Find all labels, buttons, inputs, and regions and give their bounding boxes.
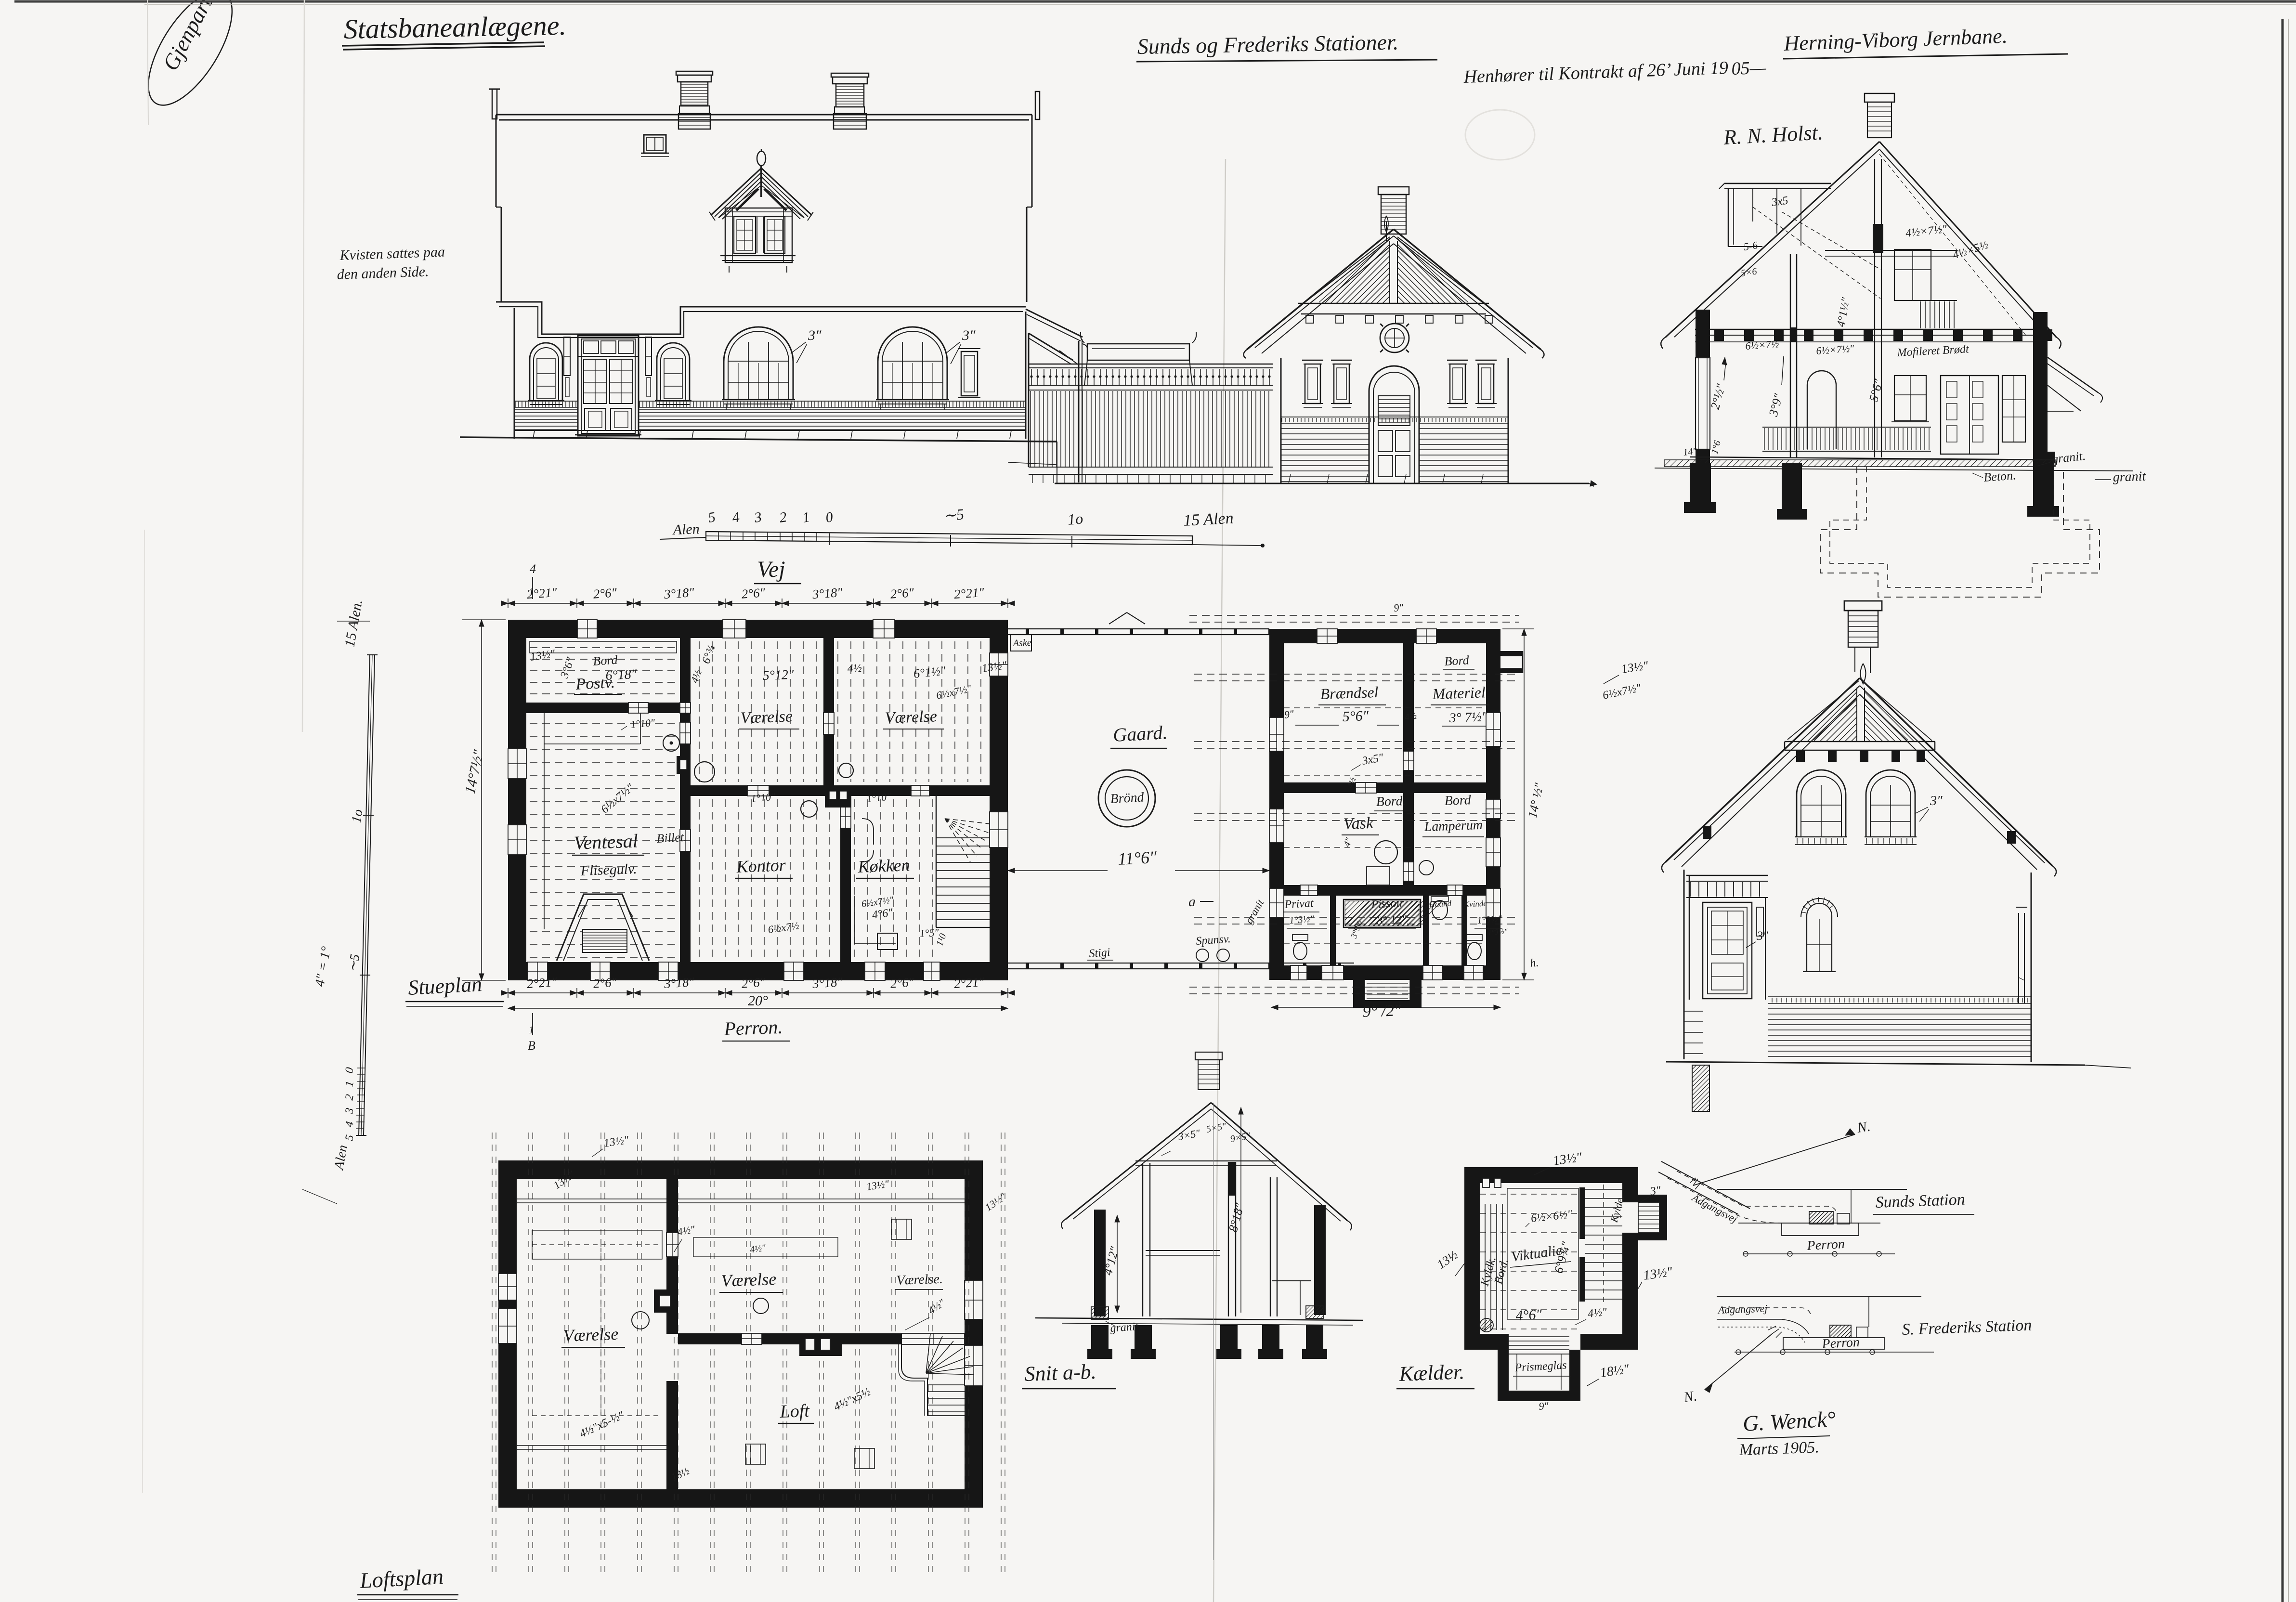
svg-text:3″: 3″ <box>962 327 976 343</box>
svg-text:5°6″: 5°6″ <box>1342 708 1369 725</box>
svg-text:Bord: Bord <box>1444 653 1470 668</box>
svg-text:Pissoir: Pissoir <box>1370 897 1405 911</box>
svg-text:4½″: 4½″ <box>749 1242 767 1255</box>
svg-text:3°18″: 3°18″ <box>811 975 843 991</box>
svg-text:Værelse: Værelse <box>721 1269 777 1290</box>
svg-text:3° 7½″: 3° 7½″ <box>1448 709 1487 726</box>
svg-text:Sunds og Frederiks Stationer.: Sunds og Frederiks Stationer. <box>1137 30 1398 59</box>
svg-text:Postv.: Postv. <box>574 674 615 693</box>
svg-text:15 Alen: 15 Alen <box>1183 509 1234 530</box>
svg-text:Kælder.: Kælder. <box>1398 1360 1465 1386</box>
svg-text:9° /2″: 9° /2″ <box>1362 1002 1402 1021</box>
svg-text:3° 12″: 3° 12″ <box>1376 913 1408 927</box>
svg-text:05—: 05— <box>1731 58 1766 79</box>
svg-text:Adgangsvej: Adgangsvej <box>1717 1302 1767 1316</box>
svg-text:Lamperum: Lamperum <box>1423 818 1483 834</box>
svg-text:4½: 4½ <box>1404 711 1418 723</box>
svg-text:2°21″: 2°21″ <box>526 975 558 991</box>
svg-text:Bord.: Bord. <box>1376 794 1406 809</box>
svg-text:N.: N. <box>1682 1388 1698 1406</box>
svg-text:1o: 1o <box>349 808 365 824</box>
svg-text:Brönd: Brönd <box>1110 790 1145 807</box>
svg-text:Flisegulv.: Flisegulv. <box>580 861 637 879</box>
svg-text:3″: 3″ <box>1930 794 1943 808</box>
svg-text:Kvinde: Kvinde <box>1463 899 1487 909</box>
svg-text:Snit a-b.: Snit a-b. <box>1024 1360 1097 1386</box>
svg-text:5°12″: 5°12″ <box>762 667 794 683</box>
svg-text:20°: 20° <box>748 993 768 1009</box>
svg-text:1°3½″: 1°3½″ <box>1477 913 1502 926</box>
svg-text:B: B <box>528 1039 535 1053</box>
svg-text:2°6″: 2°6″ <box>890 585 915 601</box>
svg-text:1°3½″: 1°3½″ <box>1487 927 1508 937</box>
svg-text:3°18″: 3°18″ <box>663 975 695 991</box>
svg-text:9″: 9″ <box>1393 601 1404 614</box>
svg-text:3°18″: 3°18″ <box>811 585 843 601</box>
svg-text:1°3½″: 1°3½″ <box>1289 913 1315 926</box>
svg-text:Alen: Alen <box>672 521 700 538</box>
svg-text:Perron.: Perron. <box>723 1016 783 1040</box>
svg-text:2°21″: 2°21″ <box>953 585 985 601</box>
svg-text:1: 1 <box>529 586 534 598</box>
svg-text:2°6″: 2°6″ <box>741 975 766 990</box>
svg-text:Materiel: Materiel <box>1432 683 1486 703</box>
svg-text:Perron: Perron <box>1821 1335 1860 1352</box>
svg-text:1°10″: 1°10″ <box>750 791 776 805</box>
svg-text:2°6″: 2°6″ <box>593 585 618 601</box>
svg-text:14″: 14″ <box>1683 446 1697 458</box>
svg-text:h.: h. <box>1529 957 1539 970</box>
svg-text:5×6: 5×6 <box>1740 266 1758 279</box>
svg-text:Stueplan: Stueplan <box>407 972 483 1000</box>
svg-text:Statsbaneanlægene.: Statsbaneanlægene. <box>343 10 566 45</box>
svg-text:1°10″: 1°10″ <box>630 716 656 730</box>
svg-text:Loft: Loft <box>779 1401 810 1422</box>
svg-text:Billet.: Billet. <box>656 830 687 846</box>
svg-text:11°6″: 11°6″ <box>1117 847 1158 869</box>
svg-text:Værelse: Værelse <box>563 1324 619 1345</box>
svg-text:Bord: Bord <box>592 652 618 668</box>
svg-text:Værelse.: Værelse. <box>896 1272 943 1288</box>
svg-text:Privat: Privat <box>1284 897 1315 911</box>
svg-text:a: a <box>1188 894 1196 910</box>
svg-text:4½: 4½ <box>847 662 862 675</box>
svg-text:Aske: Aske <box>1012 638 1031 649</box>
svg-text:Perron: Perron <box>1806 1237 1845 1253</box>
svg-text:Gaard.: Gaard. <box>1112 721 1168 746</box>
svg-text:∼5: ∼5 <box>345 953 363 973</box>
svg-text:Marts 1905.: Marts 1905. <box>1738 1438 1819 1459</box>
svg-text:Kontor: Kontor <box>736 855 786 876</box>
svg-text:Spunsv.: Spunsv. <box>1196 933 1231 948</box>
svg-text:2°6″: 2°6″ <box>741 585 766 601</box>
svg-text:Sunds Station: Sunds Station <box>1875 1191 1965 1211</box>
svg-text:Stigi: Stigi <box>1089 946 1111 960</box>
svg-text:Bord: Bord <box>1444 793 1472 808</box>
svg-text:6½×7½: 6½×7½ <box>1745 338 1779 352</box>
svg-text:Haand: Haand <box>1428 899 1452 909</box>
svg-text:2°21″: 2°21″ <box>953 975 985 991</box>
svg-text:Vask: Vask <box>1343 814 1374 833</box>
svg-text:1: 1 <box>529 1024 534 1036</box>
svg-text:Beton.: Beton. <box>1983 468 2016 484</box>
svg-text:4½″: 4½″ <box>1587 1306 1608 1320</box>
svg-text:4: 4 <box>530 562 536 576</box>
svg-text:9″: 9″ <box>1539 1400 1550 1412</box>
svg-text:Loftsplan: Loftsplan <box>359 1564 444 1593</box>
svg-text:4°6″: 4°6″ <box>1515 1306 1543 1324</box>
svg-text:Ventesal: Ventesal <box>574 830 639 854</box>
svg-text:3°18″: 3°18″ <box>663 585 695 601</box>
svg-text:3″: 3″ <box>1649 1184 1662 1198</box>
svg-text:Vej: Vej <box>757 557 785 582</box>
svg-text:1°10″: 1°10″ <box>866 791 892 805</box>
svg-text:5-6: 5-6 <box>1743 239 1759 253</box>
svg-text:Værelse: Værelse <box>885 707 938 727</box>
svg-text:granit: granit <box>2113 469 2147 485</box>
svg-text:Køkken: Køkken <box>857 855 910 876</box>
svg-text:3″: 3″ <box>1756 929 1769 943</box>
svg-text:den anden Side.: den anden Side. <box>337 263 429 283</box>
svg-text:2°6″: 2°6″ <box>890 975 915 990</box>
svg-text:3x5: 3x5 <box>1770 194 1789 209</box>
svg-text:3″: 3″ <box>808 327 822 343</box>
svg-text:∼5: ∼5 <box>942 505 965 524</box>
svg-text:G. Wenck°: G. Wenck° <box>1742 1407 1836 1436</box>
svg-text:1o: 1o <box>1067 509 1083 528</box>
svg-text:Brændsel: Brændsel <box>1320 683 1379 703</box>
svg-text:N.: N. <box>1855 1118 1871 1136</box>
svg-text:Værelse: Værelse <box>740 707 793 727</box>
svg-text:2°6″: 2°6″ <box>593 975 618 990</box>
